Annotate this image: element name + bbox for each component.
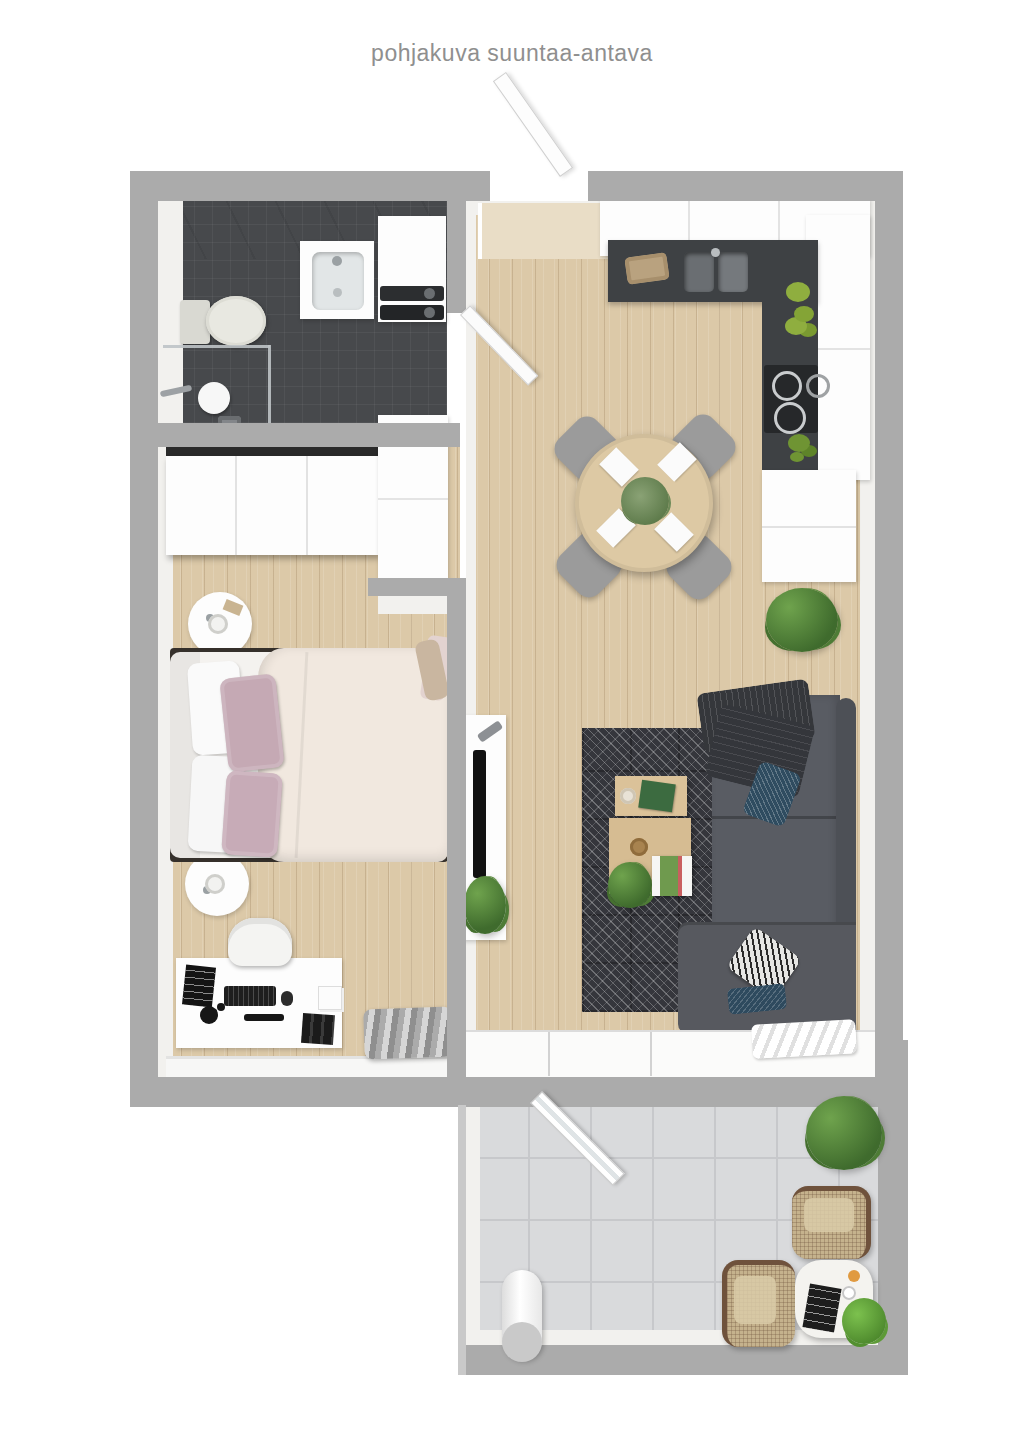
curtain (751, 1019, 857, 1058)
desk-lamp (200, 1006, 218, 1024)
pillow-pink-top (219, 673, 285, 772)
desk-books (301, 1013, 335, 1045)
entry-door-leaf (493, 72, 573, 177)
burner-1 (772, 371, 802, 401)
floor-plan: pohjakuva suuntaa-antava (0, 0, 1024, 1448)
window-divider-1 (548, 1032, 550, 1076)
counter-right (762, 240, 818, 470)
keyboard (224, 986, 276, 1006)
desk-poster (182, 965, 216, 1008)
bathroom-wall-bottom (158, 423, 460, 447)
kitchen-sink-left (684, 252, 714, 292)
balcony-edge-left (458, 1105, 466, 1375)
washer-door-circle-1 (424, 288, 435, 299)
closet-front (378, 596, 448, 614)
balcony-cup (842, 1286, 856, 1300)
table-bowl (630, 838, 648, 856)
table-candle (620, 788, 636, 804)
mouse (281, 991, 293, 1006)
green-book (638, 780, 676, 812)
cabinet-block (762, 470, 856, 582)
washer-door-circle-2 (424, 307, 435, 318)
bedroom-stub-wall (368, 578, 466, 596)
outer-wall-left (130, 171, 158, 1107)
window-sill-bedroom (166, 1056, 458, 1078)
tv-plant (464, 876, 506, 934)
nightstand-top-lamp (208, 614, 228, 634)
page-title: pohjakuva suuntaa-antava (0, 40, 1024, 67)
balcony-bush (806, 1096, 882, 1170)
nightstand-bottom-lamp (205, 874, 225, 894)
toilet-bowl (206, 296, 266, 346)
balcony-orange (848, 1270, 860, 1282)
desk-chair (228, 918, 292, 966)
window-divider-2 (650, 1032, 652, 1076)
monitor (244, 1014, 284, 1021)
shower-glass-horizontal (163, 345, 270, 348)
pillow-pink-bottom (221, 770, 283, 858)
wicker-chair-upper-cushion (804, 1198, 854, 1232)
storage-roll-cap (502, 1322, 542, 1362)
balcony-left-face (466, 1105, 480, 1345)
sink-faucet (332, 256, 342, 266)
kitchen-faucet (711, 248, 720, 257)
coffee-table-plant (608, 862, 652, 908)
bathroom-wall-right (447, 201, 466, 313)
apples-bowl (786, 282, 810, 302)
outer-wall-top-right (588, 171, 903, 201)
outer-wall-top-left (130, 171, 490, 201)
tv (473, 750, 486, 878)
shower-glass-vertical (268, 345, 271, 425)
bed-duvet (258, 648, 448, 862)
desk-papers (318, 986, 342, 1010)
burner-3 (806, 374, 830, 398)
shower-mat (198, 382, 230, 414)
wardrobe (166, 456, 378, 555)
entry-mat (478, 203, 612, 259)
window-bench-textiles (363, 1006, 453, 1059)
wicker-chair-lower-cushion (734, 1276, 776, 1324)
kitchen-greens (788, 434, 810, 452)
sink-drain (333, 288, 342, 297)
partition-wall (447, 578, 466, 1078)
bread-basket (624, 252, 669, 285)
balcony-table-plant (842, 1298, 886, 1344)
hall-face (466, 201, 476, 1078)
kitchen-floor-plant (766, 588, 838, 652)
kitchen-sink-right (718, 252, 748, 292)
burner-2 (774, 402, 806, 434)
wardrobe-shadow-gap (166, 447, 378, 456)
white-tray-magazine (652, 856, 692, 896)
dining-centerpiece-plant (621, 477, 669, 525)
outer-wall-right (875, 171, 903, 1107)
outer-wall-bottom (130, 1077, 903, 1107)
